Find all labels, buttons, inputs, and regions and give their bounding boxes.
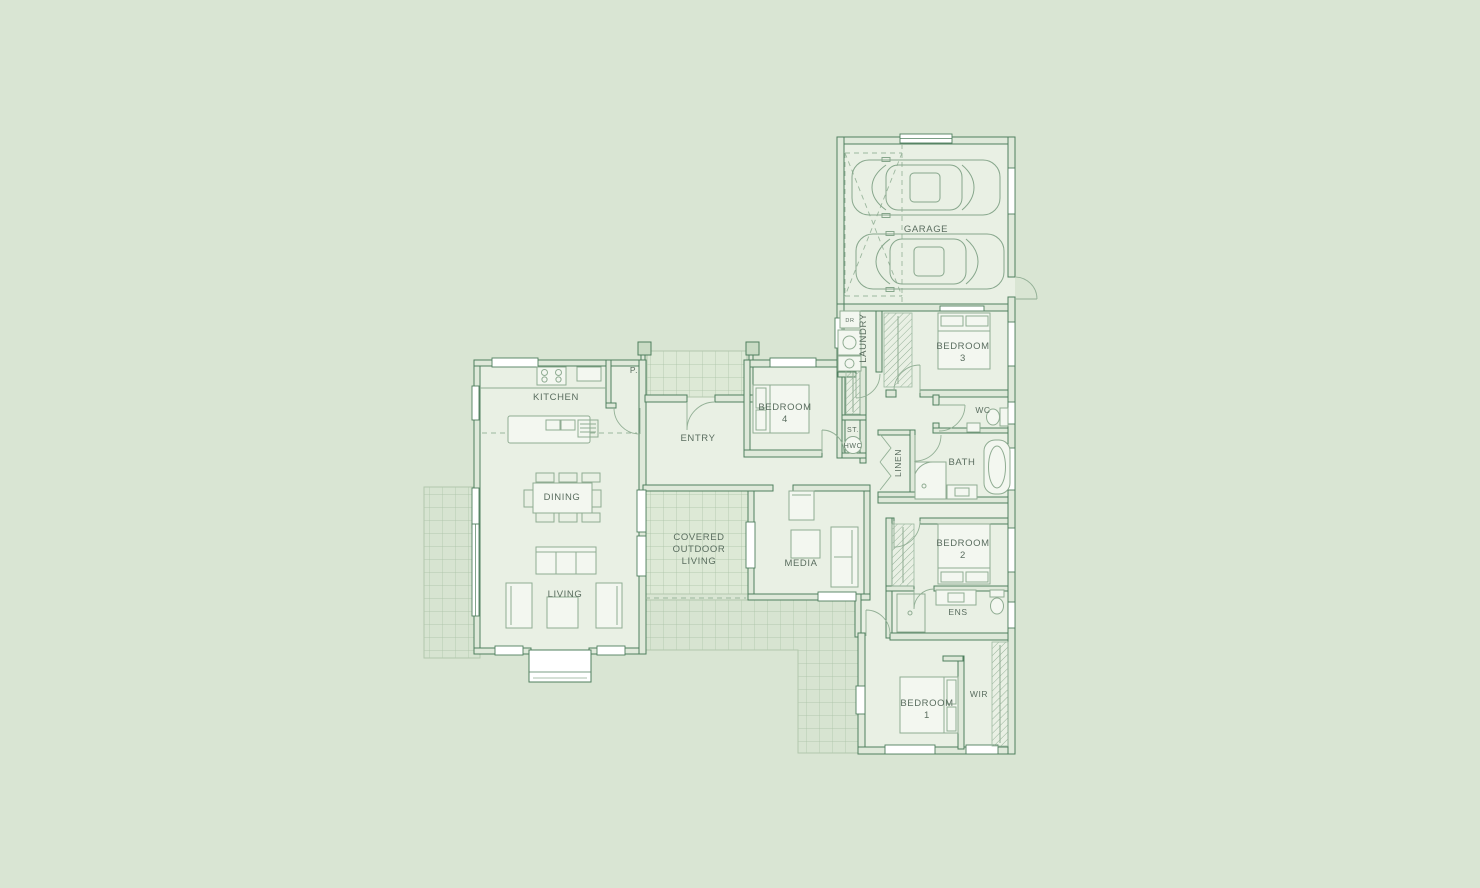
covered-outdoor-living-label-line2: OUTDOOR bbox=[673, 544, 726, 555]
bedroom4-wardrobe bbox=[846, 370, 860, 414]
bedroom1-label-line1: BEDROOM bbox=[900, 698, 953, 709]
floor-plan-page: GARAGE LAUNDRY DR BEDROOM 3 KITCHEN P. E… bbox=[0, 0, 1480, 888]
bedroom3-label-line1: BEDROOM bbox=[936, 341, 989, 352]
oven-symbol bbox=[577, 367, 601, 381]
living-label: LIVING bbox=[548, 589, 583, 600]
basin-symbol-wc bbox=[967, 423, 980, 432]
bedroom3-label-line2: 3 bbox=[960, 353, 966, 364]
bedroom2-wardrobe bbox=[892, 524, 914, 586]
kitchen-label: KITCHEN bbox=[533, 392, 579, 403]
wir-wardrobe bbox=[992, 642, 1008, 746]
cooktop-symbol bbox=[537, 367, 566, 385]
hwc-label: HWC bbox=[844, 443, 863, 450]
porch-column bbox=[746, 342, 759, 355]
rear-patio bbox=[646, 600, 858, 753]
sofa-symbol bbox=[831, 527, 858, 587]
pantry-label: P. bbox=[630, 365, 638, 375]
armchair-symbol bbox=[506, 583, 532, 628]
laundry-label: LAUNDRY bbox=[858, 313, 869, 362]
dryer-label: DR bbox=[845, 318, 854, 324]
bedroom2-label-line1: BEDROOM bbox=[936, 538, 989, 549]
wc-label: WC bbox=[975, 405, 990, 415]
bathtub-symbol bbox=[984, 440, 1010, 494]
bedroom3-wardrobe bbox=[884, 313, 912, 387]
bath-label: BATH bbox=[948, 457, 975, 468]
covered-outdoor-living-label-line3: LIVING bbox=[682, 556, 717, 567]
vanity-symbol-ens bbox=[936, 590, 976, 605]
sofa-symbol bbox=[536, 547, 596, 574]
coffee-table-symbol bbox=[791, 530, 820, 558]
wir-label: WIR bbox=[970, 689, 988, 699]
garage-label: GARAGE bbox=[904, 224, 948, 235]
floor-plan-svg: GARAGE LAUNDRY DR BEDROOM 3 KITCHEN P. E… bbox=[0, 0, 1480, 888]
bedroom1-label-line2: 1 bbox=[924, 710, 930, 721]
toilet-symbol-ens bbox=[990, 590, 1004, 614]
media-label: MEDIA bbox=[784, 558, 817, 569]
dining-label: DINING bbox=[544, 492, 581, 503]
storage-label: ST. bbox=[847, 427, 859, 434]
shower-symbol-bath bbox=[915, 462, 946, 499]
ens-label: ENS bbox=[948, 607, 967, 617]
coffee-table-symbol bbox=[547, 597, 578, 628]
bedroom4-label-line2: 4 bbox=[782, 414, 788, 425]
armchair-symbol bbox=[789, 491, 814, 520]
porch bbox=[638, 342, 759, 397]
armchair-symbol bbox=[596, 583, 622, 628]
vanity-symbol-bath bbox=[947, 485, 977, 499]
bedroom4-label-line1: BEDROOM bbox=[758, 402, 811, 413]
bay-window bbox=[529, 650, 591, 682]
covered-outdoor-living-label-line1: COVERED bbox=[673, 532, 724, 543]
porch-column bbox=[638, 342, 651, 355]
garage-door-arc bbox=[1015, 277, 1037, 299]
bedroom2-label-line2: 2 bbox=[960, 550, 966, 561]
entry-label: ENTRY bbox=[680, 433, 715, 444]
linen-label: LINEN bbox=[893, 449, 903, 477]
